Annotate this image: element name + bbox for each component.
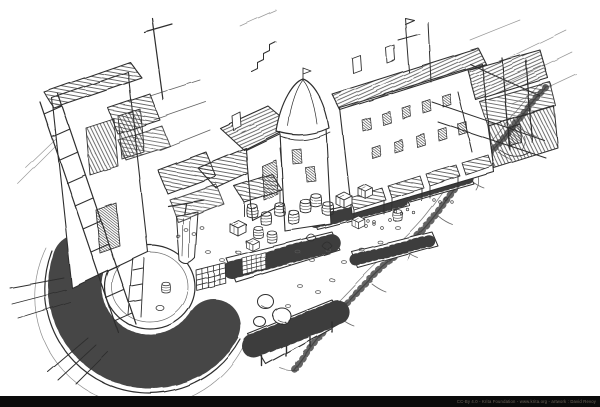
credit-bar: CC-By 4.0 - Krita Foundation - www.krita… — [0, 396, 600, 407]
boulders — [254, 295, 291, 327]
credit-text: CC-By 4.0 - Krita Foundation - www.krita… — [457, 399, 600, 403]
plank-pier — [248, 300, 346, 371]
scanned-artwork-page: CC-By 4.0 - Krita Foundation - www.krita… — [0, 0, 600, 407]
sketch-illustration — [0, 0, 600, 396]
